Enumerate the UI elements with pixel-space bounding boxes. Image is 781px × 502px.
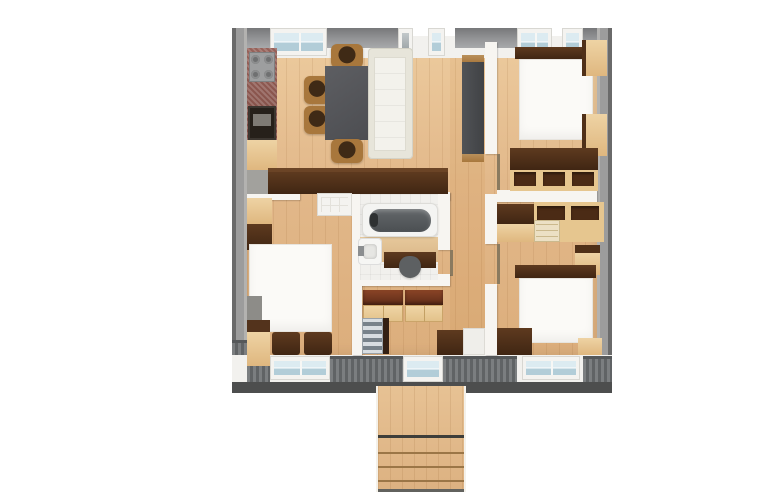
vestibule-door-leaf	[463, 328, 485, 355]
toilet	[399, 256, 421, 278]
window-glass	[526, 361, 576, 375]
window-glass	[432, 33, 441, 51]
oven	[248, 106, 276, 140]
wall-hall-bedroom-br	[485, 284, 497, 355]
living-wardrobe-row	[268, 168, 448, 194]
window-living	[428, 28, 445, 56]
cooktop	[249, 52, 275, 82]
burner-icon	[251, 55, 260, 64]
door-leaf-bedroom-tr	[497, 154, 500, 194]
apartment-plan	[232, 28, 612, 393]
wall-bedrooms-right-divider	[497, 190, 597, 202]
wardrobe-tr-upper	[582, 40, 607, 76]
dining-chair-top	[331, 44, 363, 68]
wardrobe-bl-light	[247, 198, 272, 224]
stair-railing	[383, 318, 389, 354]
cubby-inset	[572, 172, 594, 186]
sofa	[368, 48, 413, 159]
porch-bottom-edge	[378, 489, 464, 492]
window-glass	[402, 33, 409, 49]
window-bedroom-bl	[270, 356, 330, 380]
headboard-bedroom-br	[515, 265, 596, 278]
window-glass	[274, 33, 323, 51]
floor-plan-canvas	[0, 0, 781, 502]
entry-door-mat	[437, 330, 463, 355]
tv-cabinet	[462, 62, 484, 154]
cubby-inset	[543, 172, 565, 186]
entry-cabinet-left-top	[363, 290, 403, 305]
entrance-door-glass	[407, 361, 439, 377]
kitchen-base-cabinet	[247, 140, 277, 170]
desk-tr-cubbies	[510, 170, 598, 191]
entry-cabinet-right-top	[405, 290, 443, 305]
desk-chair-bl-1	[272, 332, 300, 355]
shelf-br-dark-top	[497, 204, 534, 224]
bathtub	[362, 203, 438, 237]
small-drawer-unit	[534, 220, 560, 242]
bottom-ribbed-4	[583, 356, 612, 385]
desk-chair-bl-2	[304, 332, 332, 355]
wall-hall-bedroom-tr	[485, 42, 497, 154]
window-kitchen	[270, 28, 327, 56]
sofa-cushions	[374, 57, 406, 151]
desk-tr-top	[510, 148, 598, 170]
wall-bathroom-east	[438, 192, 450, 250]
bottom-ribbed-3	[443, 356, 517, 385]
shelf-br-light-front	[497, 224, 534, 242]
cubby-inset	[514, 172, 536, 186]
shelf-inset	[537, 206, 565, 220]
burner-icon	[251, 70, 260, 79]
burner-icon	[264, 70, 273, 79]
door-leaf-bedroom-br	[497, 244, 500, 284]
washbasin-tap	[358, 246, 364, 256]
window-glass	[274, 361, 326, 375]
bathtub-faucet	[370, 213, 378, 227]
wall-bedroom-bl-entry	[352, 286, 362, 355]
dining-chair-bottom	[331, 139, 363, 163]
bottom-ribbed-2	[330, 356, 403, 385]
wall-hall-mid	[485, 194, 497, 244]
dining-table	[325, 66, 373, 140]
entrance-door	[403, 356, 443, 382]
tv-cabinet-cap-bottom	[462, 154, 484, 162]
bench-br	[578, 338, 602, 355]
burner-icon	[264, 55, 273, 64]
wood-nightstand-bl	[247, 320, 270, 366]
entrance-porch	[376, 386, 466, 492]
bathtub-interior	[369, 209, 431, 232]
wardrobe-br	[497, 328, 532, 355]
left-exterior-wall	[232, 28, 247, 382]
internal-staircase	[362, 318, 383, 354]
gray-nightstand-bl	[247, 296, 262, 320]
white-dresser	[317, 193, 352, 216]
porch-step-4	[378, 480, 464, 489]
window-bedroom-br	[522, 356, 580, 380]
shelf-inset	[571, 206, 599, 220]
entry-cabinet-right-doors	[405, 305, 443, 322]
door-leaf-bathroom	[450, 250, 453, 276]
